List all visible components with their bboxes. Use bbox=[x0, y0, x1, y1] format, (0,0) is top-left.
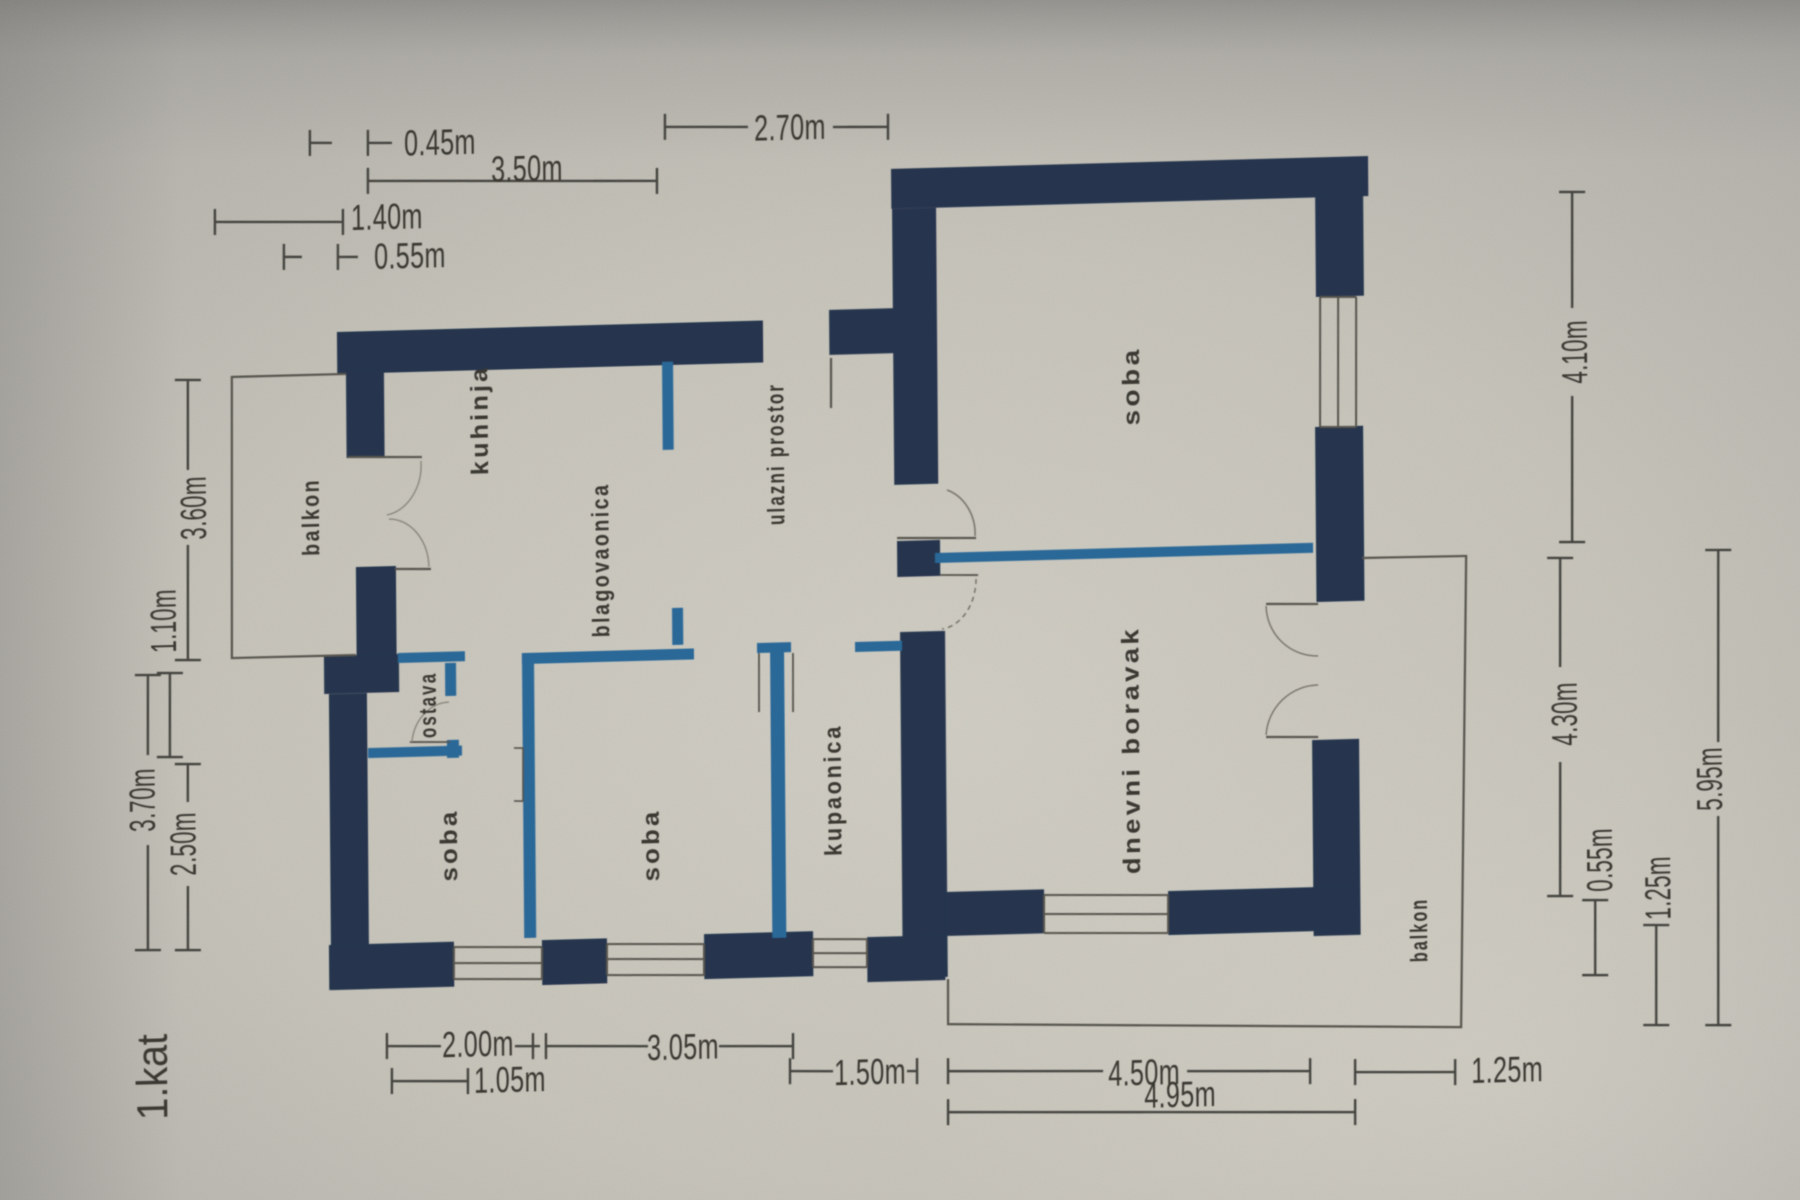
svg-text:balkon: balkon bbox=[297, 478, 325, 557]
svg-text:4.95m: 4.95m bbox=[1144, 1074, 1216, 1116]
svg-text:1.25m: 1.25m bbox=[1639, 856, 1679, 921]
svg-text:2.70m: 2.70m bbox=[754, 107, 826, 149]
svg-text:soba: soba bbox=[637, 808, 665, 882]
svg-text:balkon: balkon bbox=[1406, 897, 1433, 962]
svg-text:1.50m: 1.50m bbox=[834, 1051, 906, 1093]
svg-text:4.10m: 4.10m bbox=[1556, 320, 1596, 385]
svg-text:1.10m: 1.10m bbox=[144, 589, 184, 654]
svg-text:dnevni boravak: dnevni boravak bbox=[1118, 626, 1146, 875]
svg-text:1.kat: 1.kat bbox=[127, 1033, 177, 1121]
svg-text:blagovaonica: blagovaonica bbox=[586, 482, 615, 637]
svg-text:5.95m: 5.95m bbox=[1691, 747, 1731, 812]
svg-text:1.25m: 1.25m bbox=[1471, 1049, 1543, 1091]
svg-text:kupaonica: kupaonica bbox=[818, 724, 846, 857]
svg-text:3.60m: 3.60m bbox=[174, 476, 214, 541]
svg-text:ulazni prostor: ulazni prostor bbox=[763, 382, 791, 525]
svg-text:1.40m: 1.40m bbox=[351, 196, 423, 238]
svg-text:4.30m: 4.30m bbox=[1546, 682, 1586, 747]
svg-text:1.05m: 1.05m bbox=[474, 1059, 546, 1101]
svg-text:0.55m: 0.55m bbox=[374, 234, 446, 276]
svg-text:kuhinja: kuhinja bbox=[467, 364, 494, 475]
svg-text:soba: soba bbox=[1117, 346, 1145, 426]
svg-text:0.55m: 0.55m bbox=[1581, 828, 1621, 893]
svg-text:3.50m: 3.50m bbox=[491, 148, 563, 190]
svg-text:2.50m: 2.50m bbox=[164, 812, 204, 877]
svg-text:soba: soba bbox=[435, 808, 463, 882]
svg-text:3.05m: 3.05m bbox=[647, 1026, 719, 1068]
svg-text:ostava: ostava bbox=[415, 672, 442, 739]
svg-text:0.45m: 0.45m bbox=[404, 121, 476, 163]
svg-text:3.70m: 3.70m bbox=[123, 768, 163, 833]
